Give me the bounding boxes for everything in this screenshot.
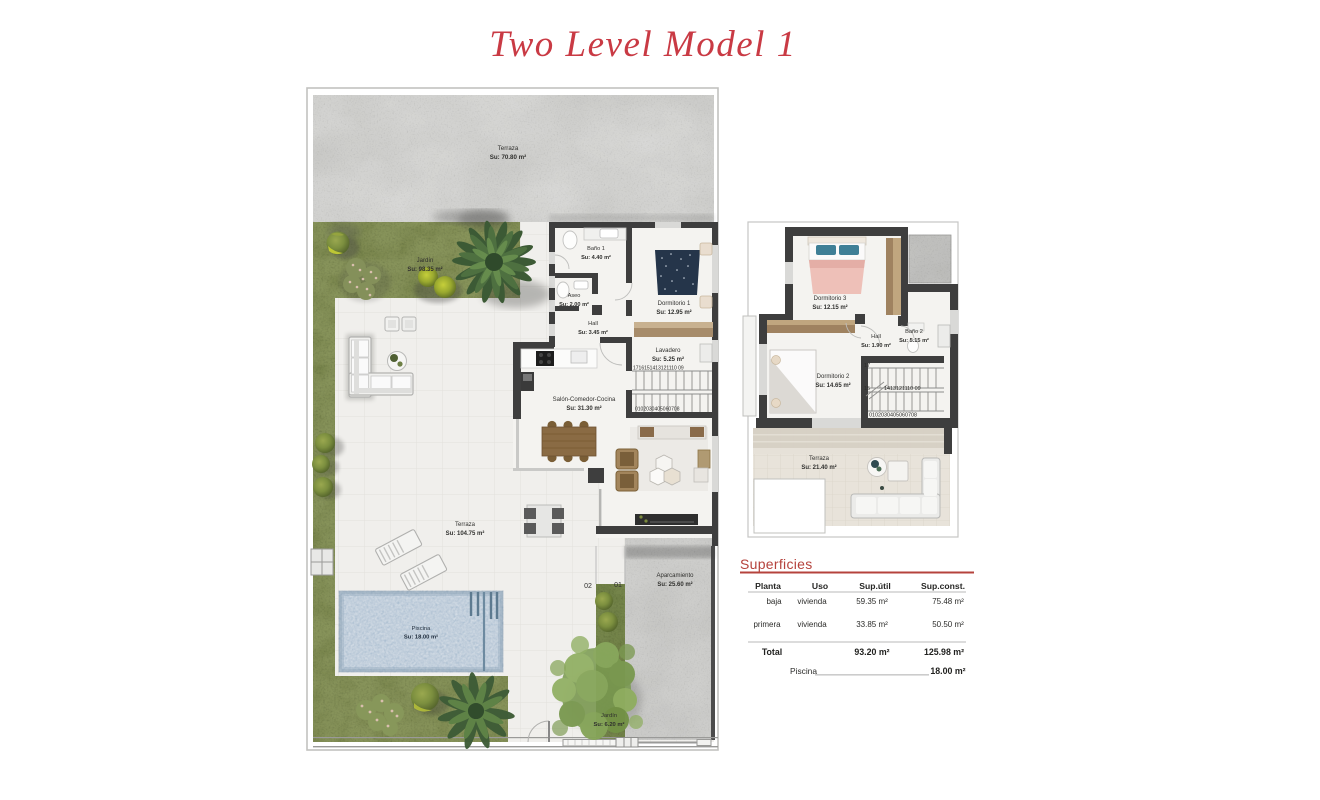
svg-text:Su: 5.25 m²: Su: 5.25 m² (652, 356, 684, 363)
svg-text:Su: 70.80 m²: Su: 70.80 m² (490, 154, 526, 161)
svg-text:Superficies: Superficies (740, 556, 813, 572)
svg-text:Uso: Uso (812, 581, 828, 591)
svg-text:Aparcamiento: Aparcamiento (656, 573, 694, 579)
svg-text:125.98 m²: 125.98 m² (924, 647, 964, 657)
svg-text:Hall: Hall (871, 334, 881, 340)
svg-text:vivienda: vivienda (797, 620, 827, 629)
svg-text:Su: 6.20 m²: Su: 6.20 m² (594, 721, 625, 728)
svg-text:0102030405060708: 0102030405060708 (869, 413, 917, 419)
svg-text:02: 02 (584, 583, 592, 590)
svg-text:Terraza: Terraza (809, 456, 830, 462)
svg-text:Su: 4.40 m²: Su: 4.40 m² (581, 254, 611, 261)
svg-text:Su: 5.15 m²: Su: 5.15 m² (899, 337, 929, 344)
svg-text:Jardín: Jardín (417, 258, 434, 264)
svg-text:15: 15 (864, 386, 870, 392)
svg-text:Jardín: Jardín (601, 713, 617, 719)
svg-text:Su: 31.30 m²: Su: 31.30 m² (566, 405, 601, 412)
svg-text:Su: 1.90 m²: Su: 1.90 m² (861, 342, 891, 349)
svg-text:Su: 21.40 m²: Su: 21.40 m² (801, 464, 836, 471)
svg-text:Planta: Planta (755, 581, 781, 591)
svg-text:Sup.const.: Sup.const. (921, 581, 965, 591)
svg-text:Su: 98.35 m²: Su: 98.35 m² (407, 266, 442, 273)
svg-text:vivienda: vivienda (797, 597, 827, 606)
svg-text:0102030405060708: 0102030405060708 (635, 407, 680, 413)
svg-text:baja: baja (766, 597, 782, 606)
svg-text:75.48 m²: 75.48 m² (932, 597, 964, 606)
svg-text:50.50 m²: 50.50 m² (932, 620, 964, 629)
svg-text:Dormitorio 2: Dormitorio 2 (817, 374, 850, 380)
svg-text:Su: 18.00 m²: Su: 18.00 m² (404, 634, 438, 641)
svg-text:Su: 12.15 m²: Su: 12.15 m² (812, 304, 847, 311)
svg-text:Baño 2: Baño 2 (905, 329, 923, 335)
svg-text:17: 17 (864, 363, 870, 369)
svg-text:Baño 1: Baño 1 (587, 246, 605, 252)
svg-text:59.35 m²: 59.35 m² (856, 597, 888, 606)
svg-text:Dormitorio 1: Dormitorio 1 (658, 301, 691, 307)
svg-text:Terraza: Terraza (455, 522, 476, 528)
svg-text:primera: primera (753, 620, 781, 629)
svg-text:Sup.útil: Sup.útil (859, 581, 891, 591)
svg-text:18.00 m²: 18.00 m² (930, 666, 965, 676)
svg-text:Piscina: Piscina (412, 626, 431, 632)
svg-text:Su: 3.45 m²: Su: 3.45 m² (578, 329, 608, 336)
svg-text:1716151413121110 09: 1716151413121110 09 (633, 366, 684, 372)
svg-text:93.20 m²: 93.20 m² (854, 647, 889, 657)
svg-text:Su: 14.65 m²: Su: 14.65 m² (815, 382, 850, 389)
svg-text:01: 01 (614, 582, 622, 589)
svg-text:Hall: Hall (588, 321, 598, 327)
svg-text:Lavadero: Lavadero (655, 348, 681, 354)
svg-text:Two Level Model 1: Two Level Model 1 (489, 24, 796, 65)
svg-text:Dormitorio 3: Dormitorio 3 (814, 296, 847, 302)
svg-text:Su: 104.75 m²: Su: 104.75 m² (446, 530, 485, 537)
svg-text:1413121110 09: 1413121110 09 (884, 386, 921, 392)
svg-text:Su: 12.95 m²: Su: 12.95 m² (656, 309, 691, 316)
svg-text:Piscina: Piscina (790, 666, 817, 676)
svg-text:Su: 2.00 m²: Su: 2.00 m² (559, 301, 589, 308)
svg-text:Su: 25.60 m²: Su: 25.60 m² (657, 581, 692, 588)
svg-text:Aseo: Aseo (568, 293, 581, 299)
svg-text:Salón-Comedor-Cocina: Salón-Comedor-Cocina (553, 397, 616, 403)
svg-text:Terraza: Terraza (498, 145, 519, 152)
svg-text:Total: Total (762, 647, 782, 657)
svg-text:33.85 m²: 33.85 m² (856, 620, 888, 629)
